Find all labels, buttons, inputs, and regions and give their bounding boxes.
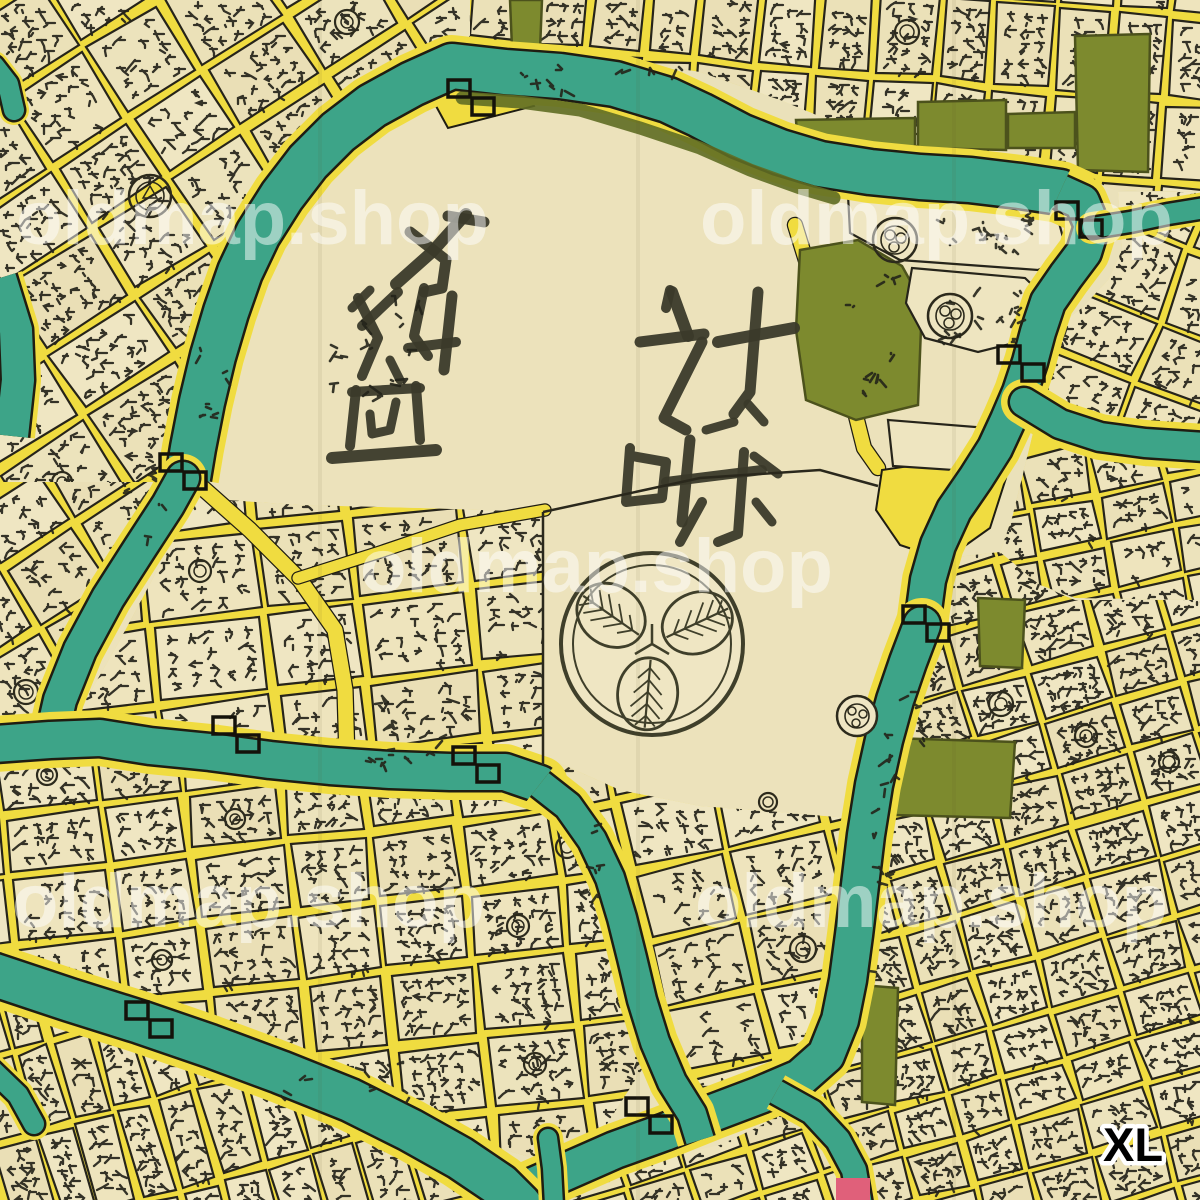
svg-text:XL: XL bbox=[1103, 1118, 1163, 1171]
svg-text:oldmap.shop: oldmap.shop bbox=[12, 859, 485, 944]
svg-text:oldmap.shop: oldmap.shop bbox=[695, 859, 1168, 944]
svg-text:oldmap.shop: oldmap.shop bbox=[16, 176, 489, 261]
svg-text:oldmap.shop: oldmap.shop bbox=[700, 176, 1173, 261]
svg-text:oldmap.shop: oldmap.shop bbox=[360, 524, 833, 609]
